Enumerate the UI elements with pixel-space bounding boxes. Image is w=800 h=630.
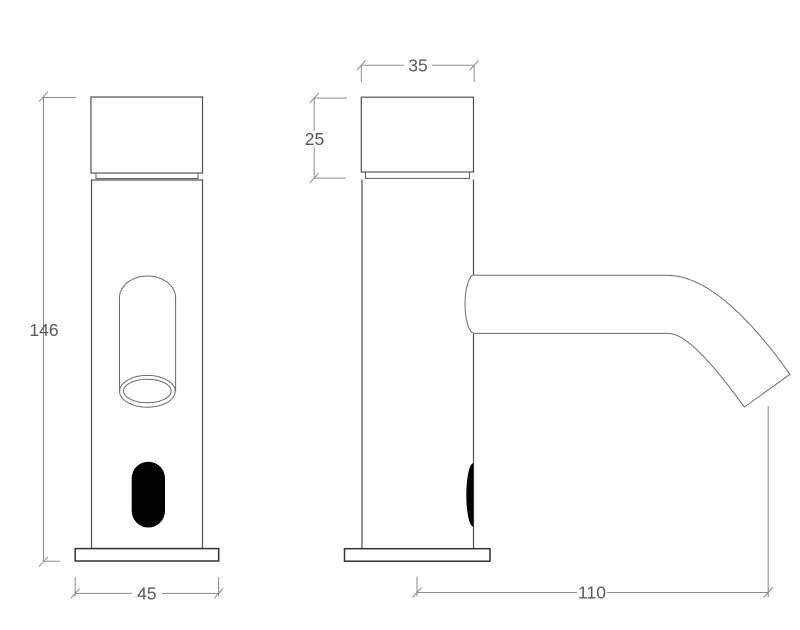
svg-text:25: 25 bbox=[305, 129, 324, 149]
svg-text:146: 146 bbox=[29, 320, 58, 340]
svg-text:45: 45 bbox=[137, 584, 156, 604]
svg-text:110: 110 bbox=[578, 583, 606, 603]
svg-text:35: 35 bbox=[408, 56, 427, 76]
